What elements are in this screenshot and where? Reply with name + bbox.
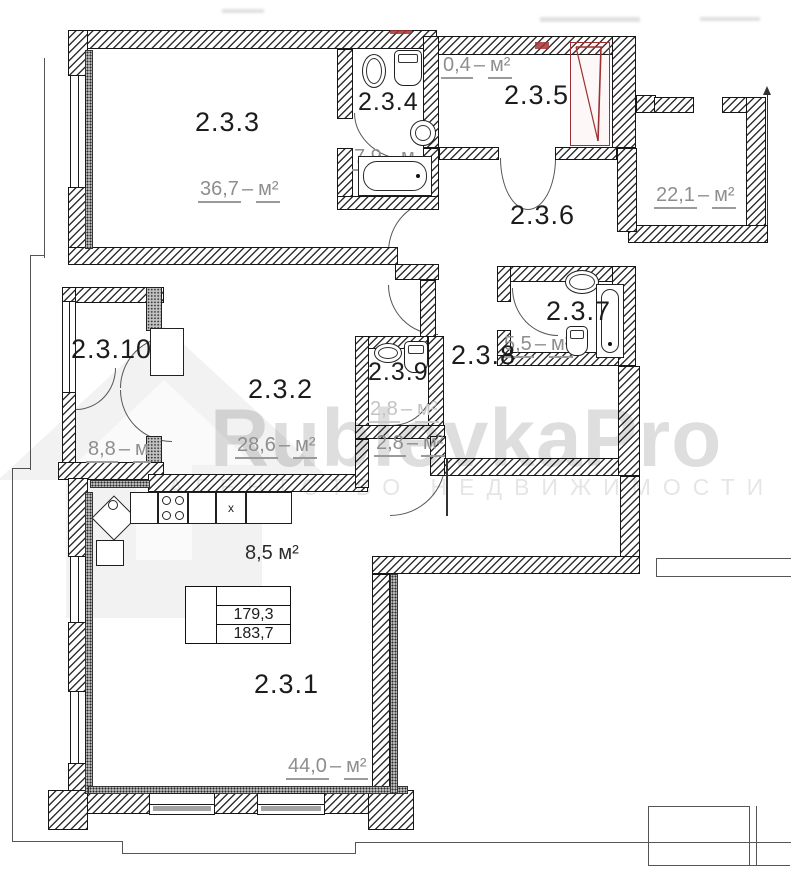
area-unit: м bbox=[133, 438, 151, 463]
room-label-2-3-10: 2.3.10 bbox=[71, 334, 152, 365]
room-label-2-3-1: 2.3.1 bbox=[254, 669, 319, 700]
total-area-value: 179,3 bbox=[233, 606, 273, 624]
area-dash: – bbox=[473, 54, 488, 76]
burner-icon bbox=[162, 496, 171, 505]
area-label-2-3-3: 36,7–м² bbox=[198, 178, 280, 201]
summary-table: 179,3 183,7 bbox=[185, 586, 291, 644]
scan-artifact bbox=[700, 17, 760, 21]
wall-segment bbox=[439, 147, 499, 160]
room-name: 2.3.6 bbox=[510, 200, 575, 230]
wall-segment bbox=[372, 574, 390, 796]
wall-segment bbox=[746, 97, 766, 231]
red-mark bbox=[390, 30, 412, 34]
kitchen-counter bbox=[130, 492, 158, 524]
burner-icon bbox=[162, 511, 171, 520]
area-value: 36,7 bbox=[198, 178, 241, 203]
red-wardrobe-lines bbox=[571, 43, 611, 147]
neighbour-outline bbox=[648, 806, 750, 866]
area-dash: – bbox=[406, 432, 421, 454]
area-value: 28,6 bbox=[235, 434, 278, 459]
wall-segment bbox=[505, 266, 617, 282]
scan-artifact bbox=[540, 17, 640, 22]
wall-segment bbox=[628, 225, 768, 243]
table-cell-blank bbox=[186, 587, 217, 643]
burner-icon bbox=[175, 496, 184, 505]
table-right-column: 179,3 183,7 bbox=[217, 587, 290, 643]
neighbour-outline bbox=[656, 576, 791, 577]
room-name: 2.3.8 bbox=[451, 340, 516, 370]
arrow-up-icon bbox=[763, 86, 771, 95]
area-value: 8,8 bbox=[86, 438, 118, 463]
wall-segment bbox=[555, 147, 617, 160]
wall-segment bbox=[60, 792, 412, 814]
toilet-icon bbox=[566, 326, 588, 356]
red-mark bbox=[535, 42, 549, 49]
table-row-blank bbox=[217, 587, 290, 606]
room-name: 2.3.1 bbox=[254, 669, 319, 699]
wall-segment bbox=[68, 247, 398, 265]
balcony-outline bbox=[122, 853, 355, 854]
area-dash: – bbox=[241, 178, 256, 200]
room-label-2-3-7: 2.3.7 bbox=[546, 296, 611, 327]
wall-segment bbox=[85, 30, 437, 49]
wall-segment bbox=[62, 392, 76, 464]
insulation-strip bbox=[85, 492, 93, 794]
area-label-2-3-10: 8,8–м bbox=[86, 438, 151, 461]
wall-segment bbox=[395, 264, 439, 280]
room-label-2-3-3: 2.3.3 bbox=[195, 107, 260, 138]
floor-plan: x RublevkaPro АГЕНТСТВО НЕДВИЖИМОСТИ 2.3… bbox=[0, 0, 791, 871]
area-value: 44,0 bbox=[286, 755, 329, 780]
kitchen-area-label: 8,5 м² bbox=[245, 542, 299, 565]
area-unit: м² bbox=[488, 54, 512, 79]
water-heater-icon bbox=[410, 120, 436, 146]
room-name: 2.3.5 bbox=[504, 80, 569, 110]
wall-segment bbox=[617, 148, 637, 232]
area-value: 2,8 bbox=[368, 398, 400, 423]
kitchen-vent-marker: x bbox=[216, 492, 246, 524]
area-dash: – bbox=[534, 333, 549, 355]
wall-segment bbox=[420, 280, 436, 338]
insulation-strip bbox=[88, 786, 408, 794]
neighbour-outline bbox=[648, 865, 790, 866]
balcony-outline bbox=[44, 58, 45, 258]
room-label-2-3-8: 2.3.8 bbox=[451, 340, 516, 371]
area-dash: – bbox=[697, 184, 712, 206]
area-value: 22,1 bbox=[654, 184, 697, 209]
wardrobe bbox=[150, 328, 184, 376]
balcony-outline bbox=[122, 841, 123, 853]
area-value: 0,4 bbox=[441, 54, 473, 79]
area-dash: – bbox=[329, 755, 344, 777]
table-row-area-2: 183,7 bbox=[217, 625, 290, 643]
window bbox=[149, 793, 215, 815]
room-label-2-3-2: 2.3.2 bbox=[248, 374, 313, 405]
kitchen-counter bbox=[188, 492, 216, 524]
table-row-area-1: 179,3 bbox=[217, 606, 290, 625]
wall-segment bbox=[497, 266, 511, 302]
insulation-strip bbox=[90, 480, 150, 488]
area-unit: м² bbox=[256, 178, 280, 203]
wall-segment bbox=[337, 196, 439, 210]
area-dash: – bbox=[400, 398, 415, 420]
area-unit: м² bbox=[421, 432, 445, 457]
balcony-outline bbox=[355, 842, 356, 854]
insulation-strip bbox=[390, 574, 398, 794]
sink-icon bbox=[362, 54, 386, 88]
room-name: 2.3.10 bbox=[71, 334, 152, 364]
area-unit: м² bbox=[293, 434, 317, 459]
room-name: 2.3.3 bbox=[195, 107, 260, 137]
wall-segment bbox=[654, 97, 694, 113]
area-label-2-3-2: 28,6–м² bbox=[235, 434, 317, 457]
total-area-value: 183,7 bbox=[233, 625, 273, 643]
burner-icon bbox=[175, 511, 184, 520]
scan-artifact bbox=[222, 9, 264, 13]
room-label-2-3-4: 2.3.4 bbox=[358, 88, 419, 117]
room-name: 2.3.7 bbox=[546, 296, 611, 326]
area-dash: – bbox=[118, 438, 133, 460]
area-unit: м² bbox=[415, 398, 439, 423]
neighbour-outline bbox=[656, 558, 657, 577]
leader-line bbox=[767, 94, 768, 234]
toilet-icon bbox=[394, 50, 422, 86]
area-unit: м² bbox=[344, 755, 368, 780]
kitchen-faucet-icon bbox=[108, 500, 118, 510]
window bbox=[257, 793, 325, 815]
room-name: 2.3.9 bbox=[368, 358, 429, 386]
area-value: 2,8 bbox=[374, 432, 406, 457]
window bbox=[70, 691, 86, 764]
area-label-2-3-9: 2,8–м² bbox=[368, 398, 439, 421]
room-name: 2.3.4 bbox=[358, 88, 419, 116]
room-label-2-3-9: 2.3.9 bbox=[368, 358, 429, 387]
window bbox=[70, 75, 86, 188]
kitchen-counter bbox=[96, 540, 124, 566]
wall-segment bbox=[337, 49, 353, 119]
neighbour-outline bbox=[756, 806, 757, 866]
wall-segment bbox=[612, 36, 636, 148]
room-label-2-3-6: 2.3.6 bbox=[510, 200, 575, 231]
area-label-hall: 2,8–м² bbox=[374, 432, 445, 455]
bathtub-icon bbox=[358, 156, 432, 196]
stove-icon bbox=[158, 492, 188, 524]
window bbox=[70, 556, 86, 623]
area-label-2-3-6: 22,1–м² bbox=[654, 184, 736, 207]
room-label-2-3-5: 2.3.5 bbox=[504, 80, 569, 111]
vent-marker-label: x bbox=[228, 501, 234, 515]
red-highlight-wardrobe bbox=[570, 42, 610, 146]
balcony-outline bbox=[30, 255, 45, 256]
wall-segment bbox=[62, 287, 76, 302]
area-dash: – bbox=[278, 434, 293, 456]
kitchen-counter bbox=[246, 492, 292, 524]
wall-segment bbox=[146, 287, 162, 331]
room-name: 2.3.2 bbox=[248, 374, 313, 404]
area-label-2-3-1: 44,0–м² bbox=[286, 755, 368, 778]
area-label-2-3-5: 0,4–м² bbox=[441, 54, 512, 77]
neighbour-outline bbox=[656, 558, 791, 559]
sink-icon bbox=[565, 270, 599, 294]
wall-segment bbox=[636, 95, 656, 113]
wall-segment bbox=[372, 556, 640, 574]
wall-segment bbox=[368, 790, 414, 830]
area-unit: м² bbox=[712, 184, 736, 209]
insulation-strip bbox=[85, 50, 93, 249]
balcony-outline bbox=[12, 841, 122, 842]
wall-segment bbox=[48, 790, 88, 830]
